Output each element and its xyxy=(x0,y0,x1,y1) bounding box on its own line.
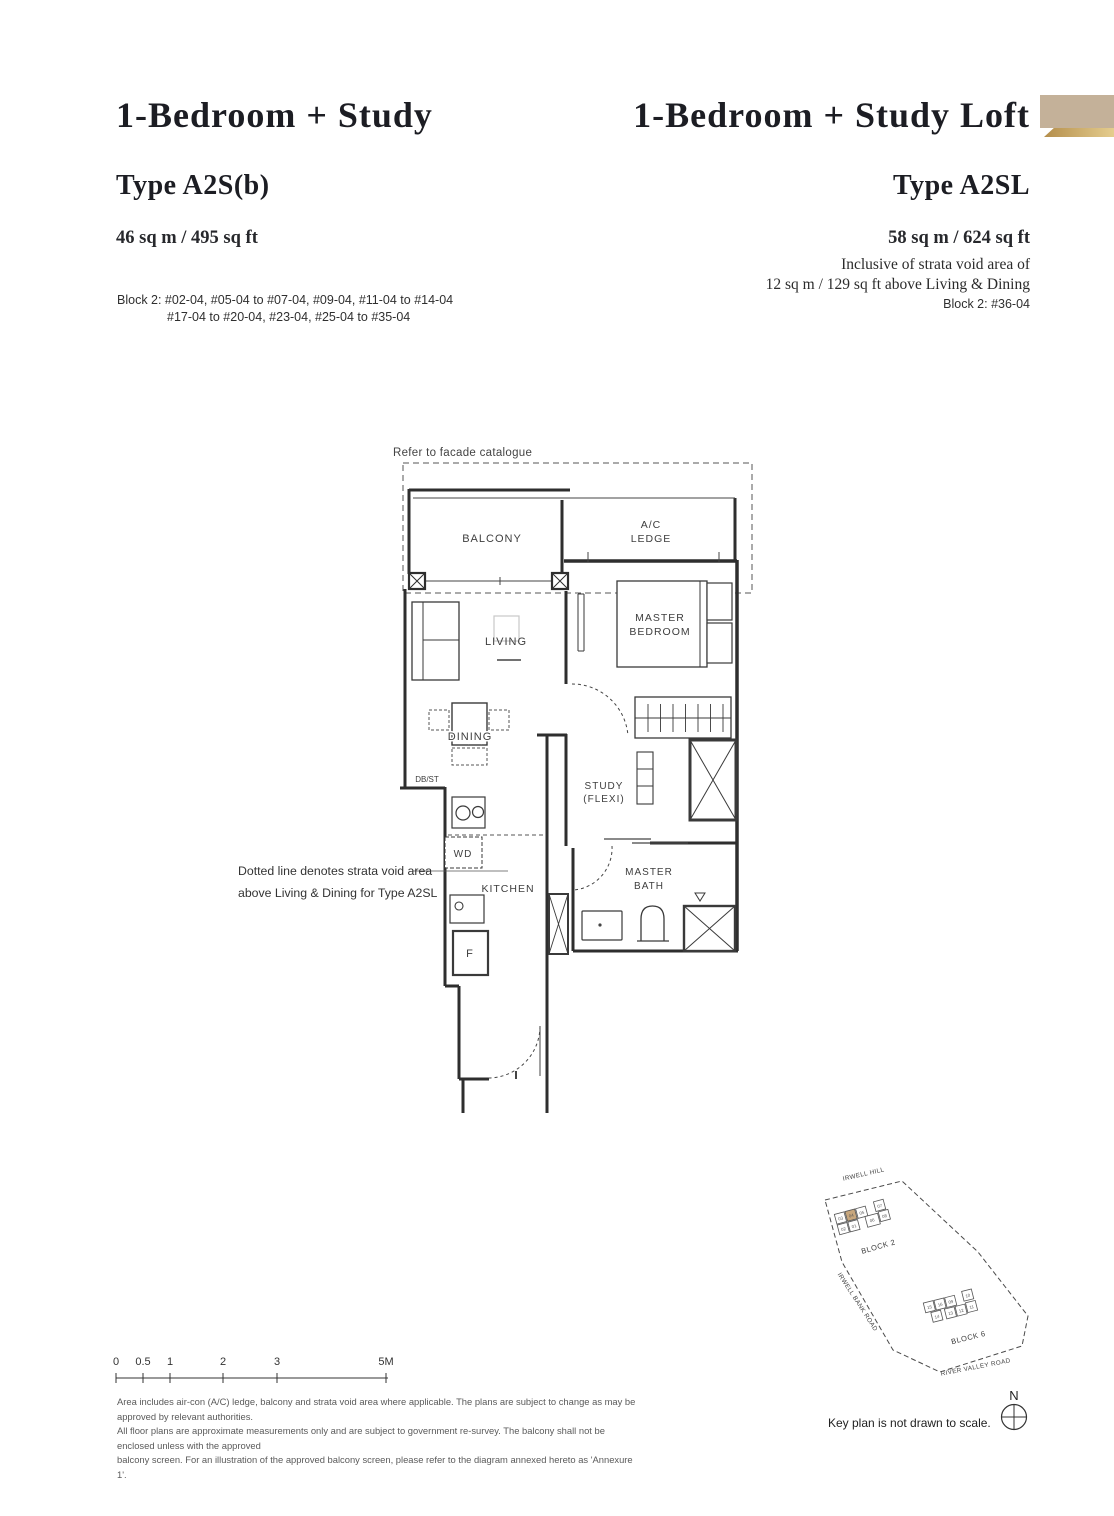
disclaimer: Area includes air-con (A/C) ledge, balco… xyxy=(117,1395,637,1483)
scale-label-2: 2 xyxy=(220,1356,226,1368)
corner-ribbon-gold-edge xyxy=(1044,128,1114,137)
door-swing-arcs xyxy=(488,684,628,1078)
dining-chair xyxy=(429,710,449,730)
scale-bar: 0 0.5 1 2 3 5M xyxy=(110,1352,410,1388)
kitchen-label: KITCHEN xyxy=(481,883,534,895)
master-bedroom-label-line1: MASTER xyxy=(635,612,685,624)
block6-label: BLOCK 6 xyxy=(950,1329,986,1346)
right-unit-title: 1-Bedroom + Study Loft xyxy=(633,94,1030,136)
bath-sink xyxy=(582,911,622,940)
bed xyxy=(617,581,707,667)
key-plan: IRWELL HILL IRWELL BANK ROAD RIVER VALLE… xyxy=(795,1140,1114,1450)
block2-label: BLOCK 2 xyxy=(860,1237,896,1255)
ac-ledge-label-line2: LEDGE xyxy=(631,533,672,545)
scale-label-5m: 5M xyxy=(378,1356,393,1368)
disclaimer-line1: Area includes air-con (A/C) ledge, balco… xyxy=(117,1395,637,1424)
study-label-line2: (FLEXI) xyxy=(583,794,624,805)
strata-annotation-line2: above Living & Dining for Type A2SL xyxy=(238,886,438,900)
left-area-text: 46 sq m / 495 sq ft xyxy=(116,228,258,249)
block2-cluster: 03 04 05 07 02 01 06 08 xyxy=(834,1199,891,1235)
facade-note: Refer to facade catalogue xyxy=(393,447,532,459)
right-area-text: 58 sq m / 624 sq ft xyxy=(888,228,1030,249)
right-type-label: Type A2SL xyxy=(893,170,1030,202)
right-strata-note: Inclusive of strata void area of 12 sq m… xyxy=(766,255,1030,295)
dining-chair xyxy=(489,710,509,730)
left-unit-title: 1-Bedroom + Study xyxy=(116,94,433,136)
scale-label-0-5: 0.5 xyxy=(135,1356,150,1368)
wardrobe xyxy=(635,697,731,738)
north-label: N xyxy=(1009,1388,1018,1403)
living-label: LIVING xyxy=(485,636,527,648)
floor-plan: Refer to facade catalogue BALCONY A/C LE… xyxy=(230,440,775,1130)
right-unit-list: Block 2: #36-04 xyxy=(943,297,1030,311)
hob xyxy=(452,797,485,828)
left-type-label: Type A2S(b) xyxy=(116,170,270,202)
db-st-label: DB/ST xyxy=(415,775,439,784)
sofa xyxy=(412,602,459,680)
dining-label: DINING xyxy=(448,731,493,743)
north-compass-icon xyxy=(1001,1404,1027,1430)
road-label-irwell-hill: IRWELL HILL xyxy=(842,1166,885,1182)
balcony-label: BALCONY xyxy=(462,533,522,545)
right-strata-note-line1: Inclusive of strata void area of xyxy=(766,255,1030,275)
scale-label-3: 3 xyxy=(274,1356,280,1368)
strata-annotation-line1: Dotted line denotes strata void area xyxy=(238,864,432,878)
scale-label-0: 0 xyxy=(113,1356,119,1368)
kitchen-sink xyxy=(450,895,484,923)
left-unit-list-line2: #17-04 to #20-04, #23-04, #25-04 to #35-… xyxy=(117,309,453,326)
disclaimer-line3: balcony screen. For an illustration of t… xyxy=(117,1453,637,1482)
road-label-river-valley-road: RIVER VALLEY ROAD xyxy=(940,1357,1011,1377)
dining-table-extension xyxy=(452,748,487,765)
disclaimer-line2: All floor plans are approximate measurem… xyxy=(117,1424,637,1453)
bedside-cabinet xyxy=(707,583,732,620)
facade-dashed-boundary xyxy=(403,463,752,593)
master-bedroom-label-line2: BEDROOM xyxy=(629,626,690,638)
master-bath-label-line2: BATH xyxy=(634,881,664,892)
study-shelf xyxy=(637,752,653,804)
scale-label-1: 1 xyxy=(167,1356,173,1368)
bedroom-window xyxy=(578,594,584,651)
study-label-line1: STUDY xyxy=(585,781,624,792)
wd-label: WD xyxy=(454,849,473,860)
master-bath-label-line1: MASTER xyxy=(625,867,673,878)
keyplan-note: Key plan is not drawn to scale. xyxy=(828,1416,991,1430)
bedside-cabinet xyxy=(707,623,732,663)
road-label-irwell-bank-road: IRWELL BANK ROAD xyxy=(836,1272,879,1333)
block6-cluster: 15 16 09 10 14 13 12 11 xyxy=(923,1289,978,1324)
shower-drain xyxy=(695,893,705,901)
ac-ledge-label-line1: A/C xyxy=(641,519,662,531)
corner-ribbon-tan xyxy=(1040,95,1114,128)
left-unit-list: Block 2: #02-04, #05-04 to #07-04, #09-0… xyxy=(117,292,453,326)
right-strata-note-line2: 12 sq m / 129 sq ft above Living & Dinin… xyxy=(766,275,1030,295)
corner-ribbon-tab xyxy=(1040,95,1114,137)
toilet xyxy=(641,906,664,941)
fridge-label: F xyxy=(466,948,474,960)
left-unit-list-line1: Block 2: #02-04, #05-04 to #07-04, #09-0… xyxy=(117,292,453,309)
